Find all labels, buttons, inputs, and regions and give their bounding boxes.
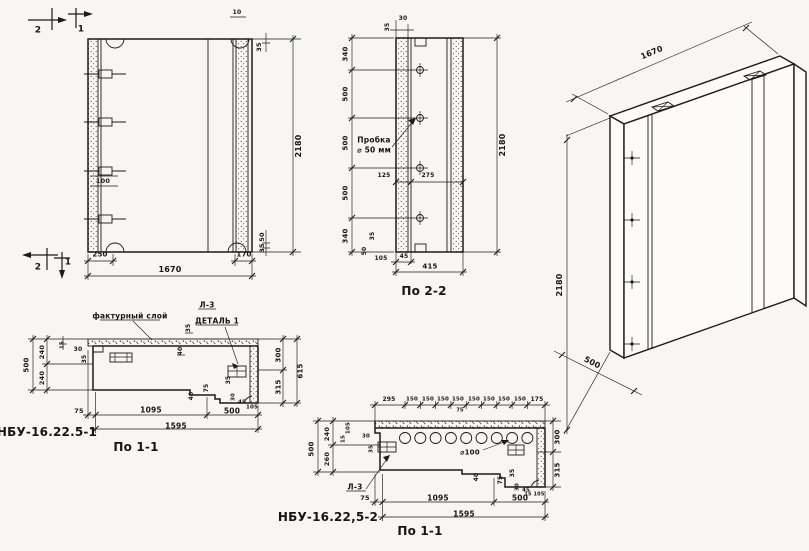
pocket-detail xyxy=(228,366,246,377)
note-leaders xyxy=(346,441,507,491)
facing-layer-hatch xyxy=(88,39,98,252)
dimension-lines xyxy=(348,20,501,276)
facing-layer-hatch xyxy=(88,339,258,346)
dimension-lines xyxy=(84,17,301,280)
note-leaders xyxy=(100,309,238,364)
panel-inner-lines xyxy=(98,39,248,252)
right-end-face xyxy=(794,64,806,306)
facing-layer-hatch xyxy=(452,38,462,252)
leader-arrowhead xyxy=(408,118,416,125)
end-wall-hatch xyxy=(250,346,258,403)
facing-layer-hatch xyxy=(375,421,545,428)
plug-holes xyxy=(412,63,428,225)
body-outline xyxy=(375,421,545,487)
corner-arc-openings xyxy=(106,39,249,252)
left-end-face xyxy=(610,116,624,358)
top-hole xyxy=(415,38,426,46)
section-2-2-view xyxy=(348,20,501,276)
dimension-lines xyxy=(313,401,561,521)
pocket-detail xyxy=(508,445,524,455)
end-wall-hatch xyxy=(537,428,545,487)
isometric-view xyxy=(554,22,806,434)
section-1-1-a-view xyxy=(28,309,301,433)
anchor-detail xyxy=(110,353,132,362)
leader-arrowheads xyxy=(383,440,509,462)
section-1-1-b-view xyxy=(313,401,561,521)
bottom-hole xyxy=(415,244,426,252)
section-cut-marks xyxy=(22,8,93,279)
drawing-linework xyxy=(0,0,809,551)
front-elevation-view xyxy=(22,8,301,280)
plug-hole-row xyxy=(400,433,533,444)
facing-layer-hatch xyxy=(236,39,248,252)
panel-outline xyxy=(88,39,252,252)
body-outline xyxy=(93,346,258,403)
drawing-sheet: 2110351005035212501701670218035303405005… xyxy=(0,0,809,551)
dimension-lines xyxy=(28,335,301,433)
